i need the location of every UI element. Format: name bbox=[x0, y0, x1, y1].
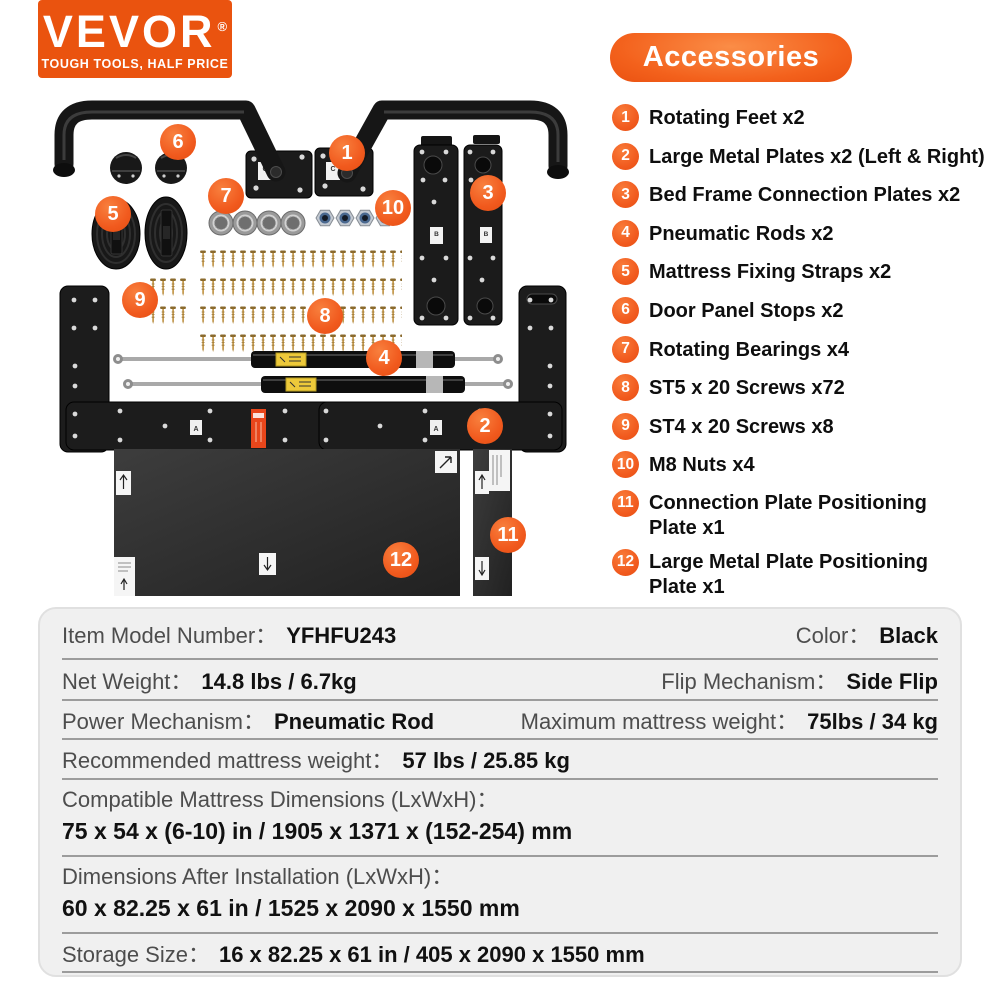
spec-row-storage-size: Storage Size：16 x 82.25 x 61 in / 405 x … bbox=[60, 934, 940, 971]
spec-table: Item Model Number：YFHFU243 Color：Black N… bbox=[38, 607, 962, 977]
spec-row-weight: Net Weight：14.8 lbs / 6.7kg Flip Mechani… bbox=[60, 660, 940, 699]
spec-separator bbox=[62, 971, 938, 973]
list-bullet: 2 bbox=[612, 143, 639, 170]
spec-row-mattress-dimensions: Compatible Mattress Dimensions (LxWxH)： … bbox=[60, 780, 940, 855]
list-item: 6 Door Panel Stops x2 bbox=[612, 297, 998, 324]
spec-label: Compatible Mattress Dimensions (LxWxH)： bbox=[62, 785, 938, 815]
spec-cell: Recommended mattress weight：57 lbs / 25.… bbox=[62, 743, 570, 775]
spec-value: 57 lbs / 25.85 kg bbox=[402, 748, 570, 773]
spec-label: Dimensions After Installation (LxWxH)： bbox=[62, 862, 938, 892]
list-bullet: 7 bbox=[612, 336, 639, 363]
spec-value: Side Flip bbox=[846, 669, 938, 694]
list-item: 8 ST5 x 20 Screws x72 bbox=[612, 374, 998, 401]
spec-row-installed-dimensions: Dimensions After Installation (LxWxH)： 6… bbox=[60, 857, 940, 932]
spec-value: 75 x 54 x (6-10) in / 1905 x 1371 x (152… bbox=[62, 815, 938, 848]
list-item-label: Rotating Feet x2 bbox=[649, 104, 805, 131]
product-infographic: VEVOR® TOUGH TOOLS, HALF PRICE Accessori… bbox=[0, 0, 1000, 1000]
diagram-marker-10: 10 bbox=[375, 190, 411, 226]
list-item-label: Door Panel Stops x2 bbox=[649, 297, 844, 324]
spec-label: Recommended mattress weight： bbox=[62, 748, 393, 773]
plate-a-label: A bbox=[193, 426, 198, 433]
list-bullet: 11 bbox=[612, 490, 639, 517]
spec-value: YFHFU243 bbox=[286, 623, 396, 648]
diagram-marker-8: 8 bbox=[307, 298, 343, 334]
spec-value: 75lbs / 34 kg bbox=[807, 709, 938, 734]
list-item-label: Rotating Bearings x4 bbox=[649, 336, 849, 363]
diagram-marker-4: 4 bbox=[366, 340, 402, 376]
part-rotating-bearings bbox=[209, 211, 305, 235]
spec-cell: Color：Black bbox=[796, 618, 938, 650]
spec-label: Flip Mechanism： bbox=[661, 669, 837, 694]
plate-b-label: B bbox=[484, 231, 489, 238]
spec-label: Storage Size： bbox=[62, 942, 210, 967]
plate-a-label: A bbox=[433, 426, 438, 433]
spec-cell: Storage Size：16 x 82.25 x 61 in / 405 x … bbox=[62, 937, 645, 969]
diagram-marker-7: 7 bbox=[208, 178, 244, 214]
list-item-label: ST4 x 20 Screws x8 bbox=[649, 413, 834, 440]
list-item: 11 Connection Plate Positioning Plate x1 bbox=[612, 490, 998, 541]
plate-b-label: B bbox=[434, 231, 439, 238]
spec-row-recommended-weight: Recommended mattress weight：57 lbs / 25.… bbox=[60, 740, 940, 778]
list-item-label: Bed Frame Connection Plates x2 bbox=[649, 181, 960, 208]
list-item: 3 Bed Frame Connection Plates x2 bbox=[612, 181, 998, 208]
parts-diagram: C C bbox=[30, 80, 605, 600]
list-item-label: M8 Nuts x4 bbox=[649, 451, 755, 478]
list-item-label: Pneumatic Rods x2 bbox=[649, 220, 834, 247]
diagram-marker-5: 5 bbox=[95, 196, 131, 232]
spec-cell: Power Mechanism：Pneumatic Rod bbox=[62, 704, 434, 736]
diagram-marker-6: 6 bbox=[160, 124, 196, 160]
spec-value: 14.8 lbs / 6.7kg bbox=[201, 669, 356, 694]
spec-label: Color： bbox=[796, 623, 871, 648]
diagram-marker-11: 11 bbox=[490, 517, 526, 553]
list-item: 10 M8 Nuts x4 bbox=[612, 451, 998, 478]
list-item: 2 Large Metal Plates x2 (Left & Right) bbox=[612, 143, 998, 170]
list-bullet: 5 bbox=[612, 258, 639, 285]
registered-mark: ® bbox=[217, 19, 227, 34]
spec-value: 16 x 82.25 x 61 in / 405 x 2090 x 1550 m… bbox=[219, 942, 645, 967]
list-bullet: 9 bbox=[612, 413, 639, 440]
spec-label: Power Mechanism： bbox=[62, 709, 265, 734]
diagram-marker-12: 12 bbox=[383, 542, 419, 578]
spec-cell: Flip Mechanism：Side Flip bbox=[661, 664, 938, 696]
list-bullet: 3 bbox=[612, 181, 639, 208]
diagram-marker-9: 9 bbox=[122, 282, 158, 318]
brand-name: VEVOR® bbox=[38, 1, 232, 58]
list-item-label: Connection Plate Positioning Plate x1 bbox=[649, 490, 954, 541]
spec-value: Black bbox=[879, 623, 938, 648]
accessories-list: 1 Rotating Feet x2 2 Large Metal Plates … bbox=[612, 104, 998, 608]
list-item: 12 Large Metal Plate Positioning Plate x… bbox=[612, 549, 998, 600]
list-item: 4 Pneumatic Rods x2 bbox=[612, 220, 998, 247]
list-item: 7 Rotating Bearings x4 bbox=[612, 336, 998, 363]
list-bullet: 1 bbox=[612, 104, 639, 131]
brand-tagline: TOUGH TOOLS, HALF PRICE bbox=[38, 57, 232, 71]
part-connection-plates: B B bbox=[414, 135, 502, 325]
list-bullet: 8 bbox=[612, 374, 639, 401]
list-item-label: ST5 x 20 Screws x72 bbox=[649, 374, 845, 401]
spec-label: Item Model Number： bbox=[62, 623, 277, 648]
spec-cell: Item Model Number：YFHFU243 bbox=[62, 618, 396, 650]
diagram-marker-3: 3 bbox=[470, 175, 506, 211]
list-item: 5 Mattress Fixing Straps x2 bbox=[612, 258, 998, 285]
list-bullet: 10 bbox=[612, 451, 639, 478]
list-bullet: 4 bbox=[612, 220, 639, 247]
spec-value: 60 x 82.25 x 61 in / 1525 x 2090 x 1550 … bbox=[62, 892, 938, 925]
list-bullet: 12 bbox=[612, 549, 639, 576]
list-item: 9 ST4 x 20 Screws x8 bbox=[612, 413, 998, 440]
spec-label: Net Weight： bbox=[62, 669, 192, 694]
diagram-marker-1: 1 bbox=[329, 135, 365, 171]
diagram-marker-2: 2 bbox=[467, 408, 503, 444]
spec-cell: Maximum mattress weight：75lbs / 34 kg bbox=[521, 704, 938, 736]
spec-label: Maximum mattress weight： bbox=[521, 709, 799, 734]
spec-row-mechanism: Power Mechanism：Pneumatic Rod Maximum ma… bbox=[60, 701, 940, 738]
list-item-label: Large Metal Plate Positioning Plate x1 bbox=[649, 549, 954, 600]
spec-row-model: Item Model Number：YFHFU243 Color：Black bbox=[60, 609, 940, 658]
list-item: 1 Rotating Feet x2 bbox=[612, 104, 998, 131]
spec-cell: Net Weight：14.8 lbs / 6.7kg bbox=[62, 664, 357, 696]
part-pneumatic-rods bbox=[113, 351, 513, 393]
part-positioning-plates bbox=[114, 449, 512, 596]
accessories-title: Accessories bbox=[610, 33, 852, 82]
list-item-label: Large Metal Plates x2 (Left & Right) bbox=[649, 143, 985, 170]
vevor-logo: VEVOR® TOUGH TOOLS, HALF PRICE bbox=[38, 0, 232, 78]
spec-value: Pneumatic Rod bbox=[274, 709, 434, 734]
list-item-label: Mattress Fixing Straps x2 bbox=[649, 258, 891, 285]
list-bullet: 6 bbox=[612, 297, 639, 324]
